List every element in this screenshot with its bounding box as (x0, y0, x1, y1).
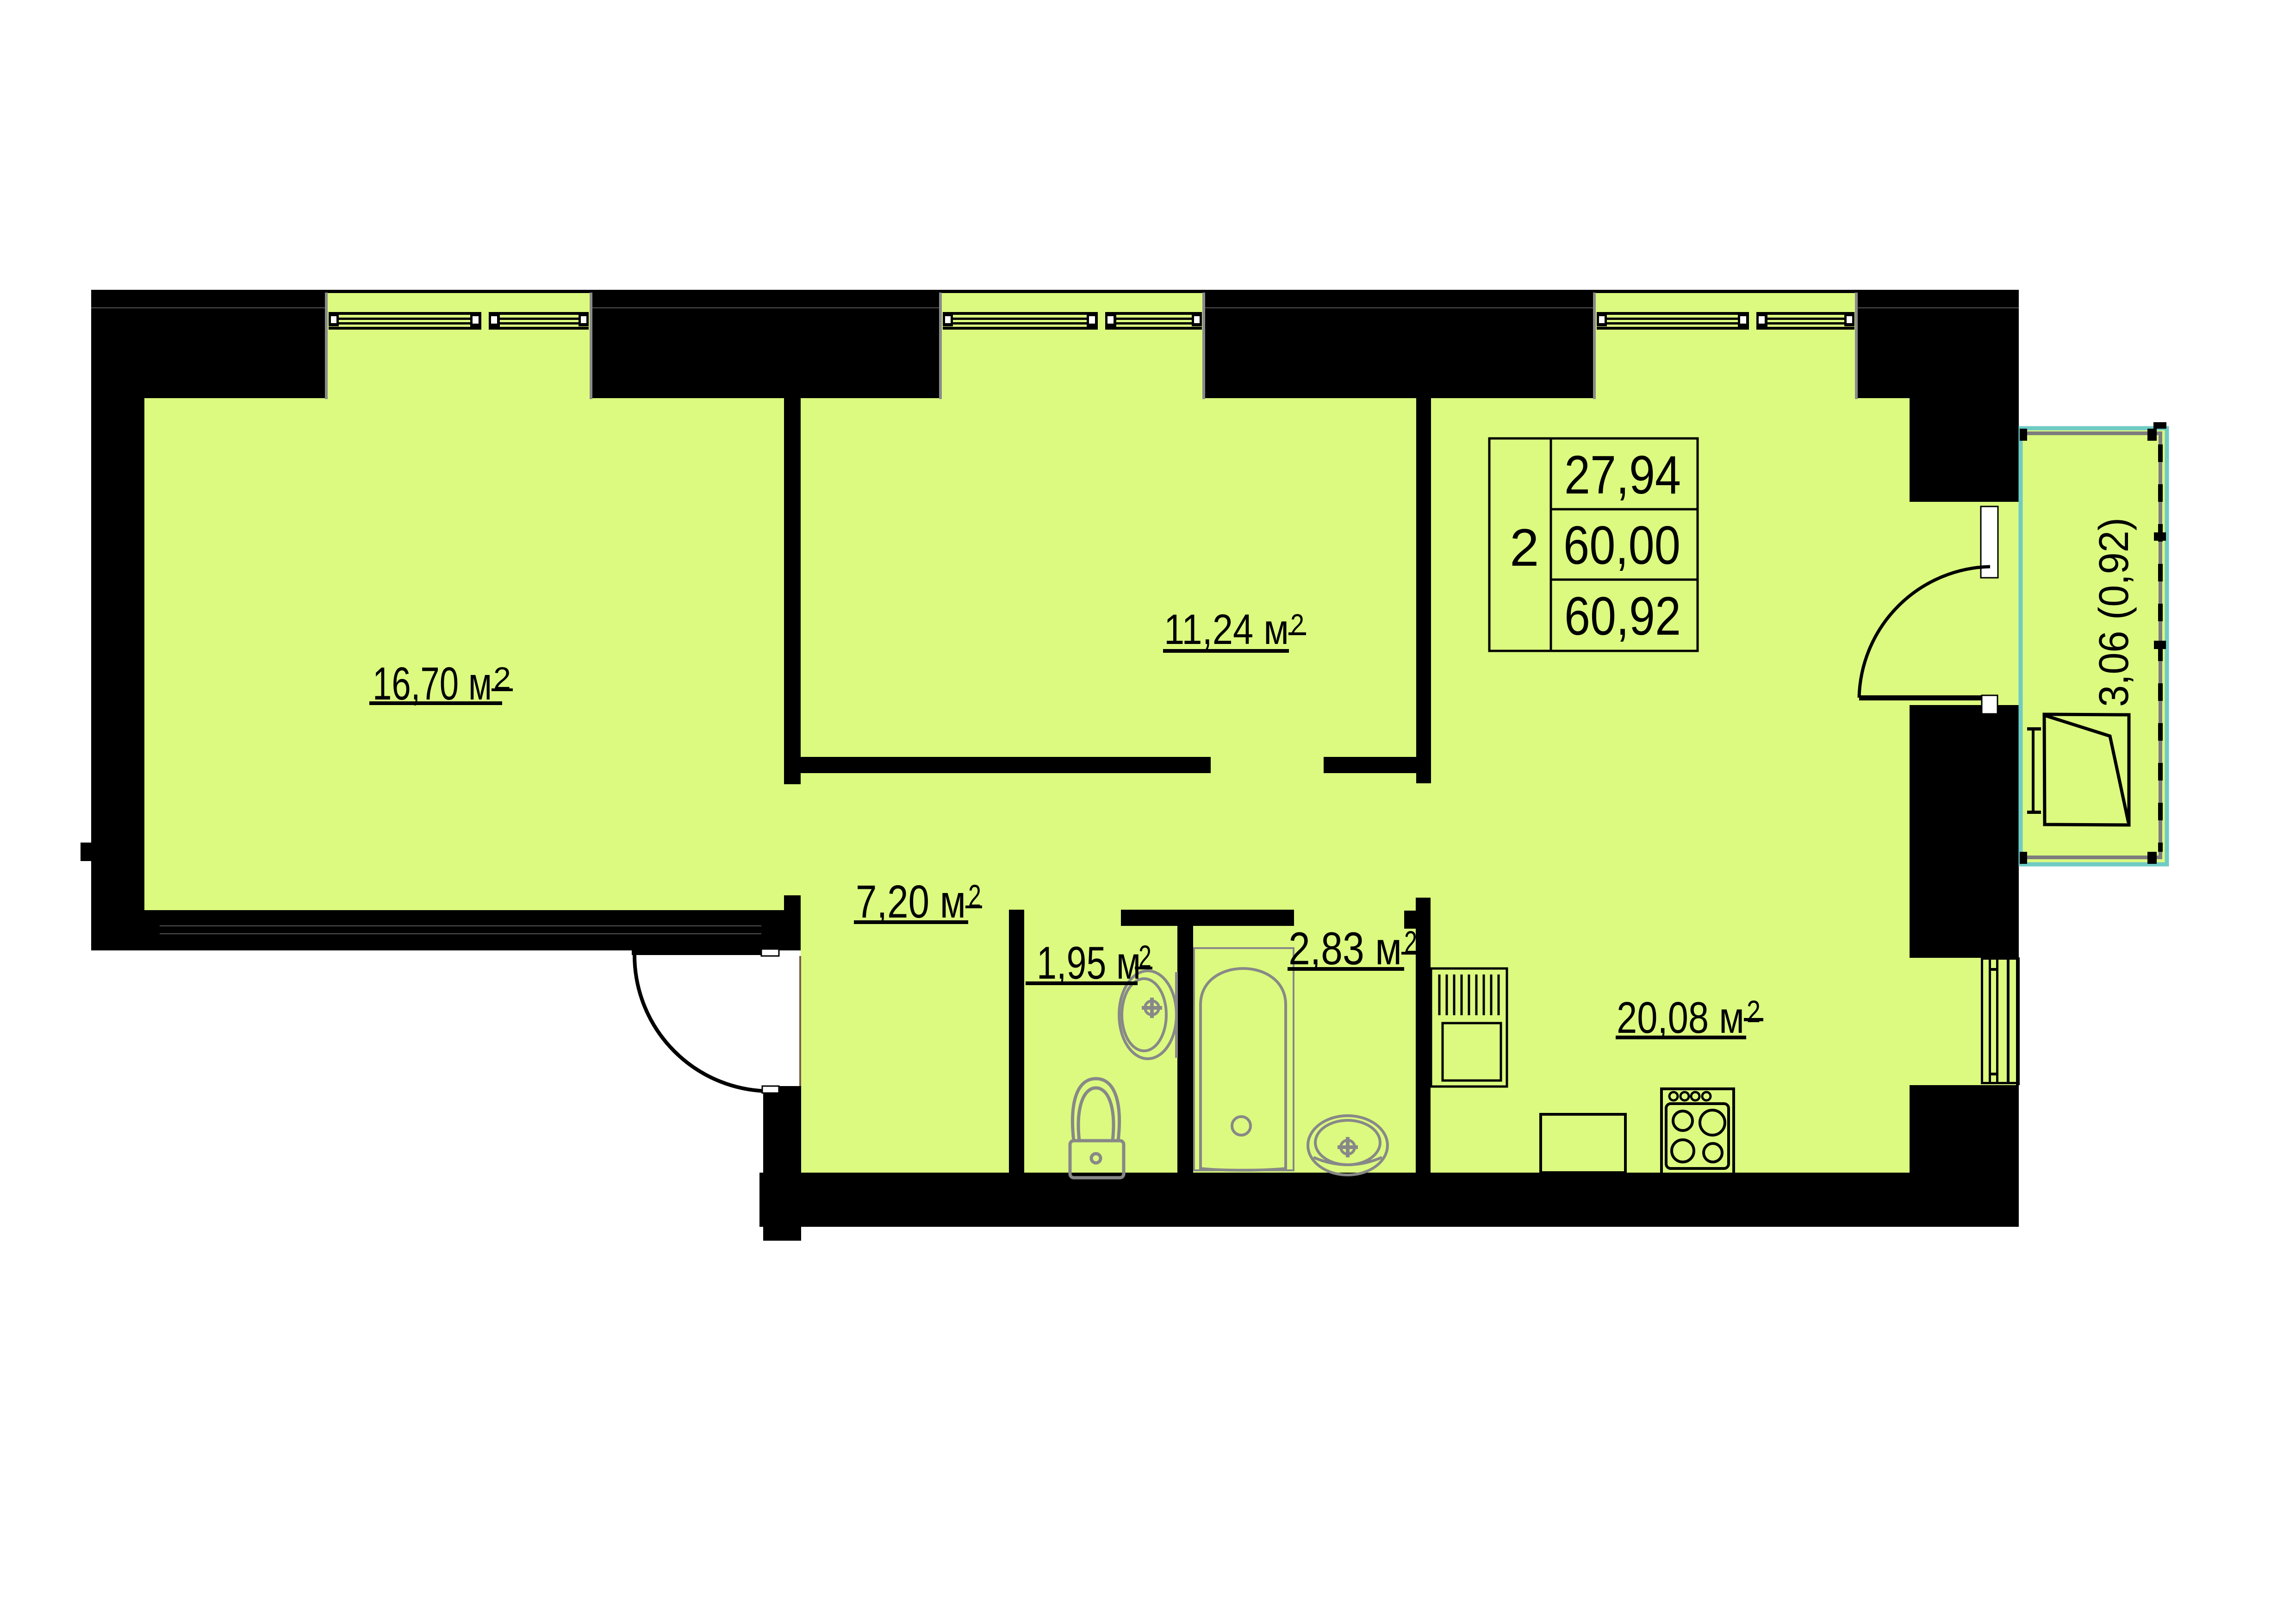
svg-text:2: 2 (1290, 608, 1304, 641)
svg-text:60,92: 60,92 (1564, 586, 1681, 646)
svg-text:2: 2 (968, 878, 981, 914)
svg-text:11,24 м: 11,24 м (1164, 606, 1289, 653)
svg-text:2: 2 (1510, 518, 1539, 577)
svg-text:27,94: 27,94 (1564, 444, 1681, 505)
svg-text:1,95 м: 1,95 м (1037, 937, 1141, 988)
svg-text:2: 2 (1404, 924, 1417, 960)
svg-text:60,00: 60,00 (1563, 515, 1680, 575)
svg-text:2,83 м: 2,83 м (1288, 923, 1402, 974)
svg-text:2: 2 (1747, 994, 1761, 1029)
svg-text:3,06 (0,92): 3,06 (0,92) (2091, 518, 2137, 707)
svg-text:20,08 м: 20,08 м (1617, 993, 1744, 1043)
svg-text:7,20 м: 7,20 м (856, 876, 966, 928)
